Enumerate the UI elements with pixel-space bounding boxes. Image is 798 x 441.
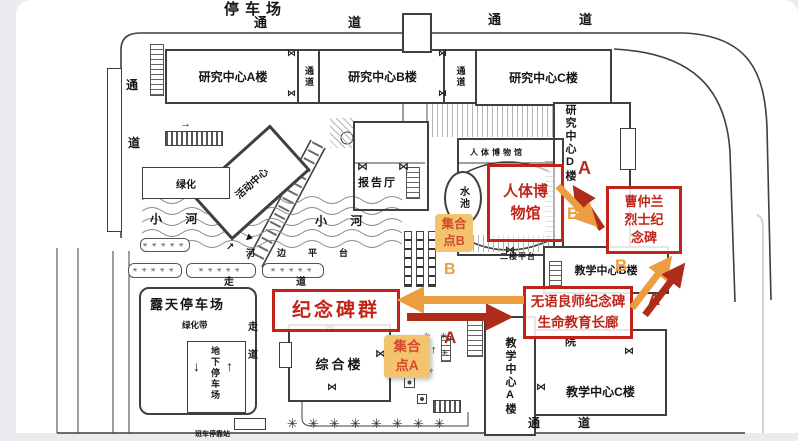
museum-building-label: 人体博物馆 bbox=[470, 147, 525, 158]
museum-callout-line2: 物馆 bbox=[490, 203, 561, 225]
cao-callout-line1: 曹仲兰 bbox=[609, 193, 679, 211]
door-icon-2: ⋈ bbox=[287, 88, 296, 99]
hedge-strip-3: ✳✳✳✳✳ bbox=[186, 263, 256, 278]
road-char-dao-bottom: 道 bbox=[578, 414, 590, 431]
small-sign-arrow: → bbox=[180, 118, 191, 130]
assembly-a-line1: 集合 bbox=[384, 338, 430, 356]
route-marker-b-1: B bbox=[567, 204, 579, 224]
plaza-hatch-4 bbox=[330, 118, 354, 148]
riverside-platform-label: 河边平台 bbox=[246, 246, 370, 259]
passage-column-2: 通道 bbox=[443, 49, 479, 104]
door-icon-12: ⋈ bbox=[505, 245, 515, 256]
lecture-hall-label: 报告厅 bbox=[358, 174, 397, 190]
tree-icon-7: ✳ bbox=[413, 416, 424, 432]
passage-column-1-label: 通道 bbox=[303, 66, 316, 88]
greenery-belt-label: 绿化带 bbox=[182, 319, 208, 331]
river-label-1: 小 河 bbox=[150, 210, 207, 227]
passage-column-2-label: 通道 bbox=[455, 66, 468, 88]
teaching-a-label: 教学中心A楼 bbox=[502, 337, 518, 416]
campus-map: 停车场 通 道 通 道 通 道 通 道 研究中心A楼 通道 研究中心B楼 通道 … bbox=[0, 0, 798, 441]
tree-icon-4: ✳ bbox=[350, 416, 361, 432]
road-char-tong-left: 通 bbox=[126, 76, 138, 93]
river-label-2: 小 河 bbox=[315, 212, 372, 229]
route-marker-b-3: B bbox=[615, 256, 627, 276]
door-icon-3: ⋈ bbox=[438, 48, 447, 59]
open-air-parking-label: 露天停车场 bbox=[150, 294, 225, 313]
slat-2 bbox=[416, 231, 424, 287]
building-research-center-a: 研究中心A楼 bbox=[165, 49, 301, 104]
hedge-strip-2: ✳✳✳✳✳ bbox=[128, 263, 182, 278]
bus-stop-shelter bbox=[234, 418, 266, 430]
underground-parking-label: 地下停车场 bbox=[209, 346, 222, 401]
road-char-tong-bottom: 通 bbox=[528, 414, 540, 431]
building-comprehensive: 综合楼 bbox=[288, 324, 391, 402]
walkway-char-3: 走 bbox=[248, 318, 258, 333]
tree-icon-2: ✳ bbox=[308, 416, 319, 432]
pool-label: 水池 bbox=[456, 186, 471, 210]
callout-monument-group: 纪念碑群 bbox=[272, 289, 400, 332]
building-teaching-c: 教学中心C楼 bbox=[534, 329, 667, 416]
tree-icon-6: ✳ bbox=[392, 416, 403, 432]
mentor-callout-line1: 无语良师纪念碑 bbox=[526, 292, 630, 313]
stairs-1 bbox=[467, 317, 483, 357]
up-arrow: ↑ bbox=[226, 358, 233, 374]
door-icon-1: ⋈ bbox=[287, 48, 296, 59]
road-char-dao-2: 道 bbox=[579, 9, 592, 28]
tree-icon-12: ✳ bbox=[441, 348, 449, 359]
tower-top bbox=[402, 13, 432, 53]
walkway-char-1: 走 bbox=[224, 273, 234, 288]
tree-icon-8: ✳ bbox=[434, 416, 445, 432]
slat-1 bbox=[404, 231, 412, 287]
road-char-dao-1: 道 bbox=[348, 12, 361, 31]
road-char-tong-2: 通 bbox=[488, 9, 501, 28]
door-icon-11: ⋈ bbox=[536, 382, 546, 393]
assembly-b-line2: 点B bbox=[435, 233, 473, 250]
assembly-b-line1: 集合 bbox=[435, 216, 473, 233]
door-icon-5: ⋈ bbox=[357, 160, 368, 173]
down-arrow: ↓ bbox=[193, 358, 200, 374]
planter-2 bbox=[404, 377, 415, 388]
door-icon-9: ⋈ bbox=[327, 382, 337, 393]
bus-stop-label: 班车停靠站 bbox=[195, 429, 230, 439]
tree-icon-1: ✳ bbox=[287, 416, 298, 432]
small-sign bbox=[165, 131, 223, 146]
walkway-arrow-icon: ↗ bbox=[226, 242, 234, 253]
cao-callout-line2: 烈士纪 bbox=[609, 211, 679, 229]
museum-callout-line1: 人体博 bbox=[490, 181, 561, 203]
planter-3 bbox=[417, 394, 427, 404]
hedge-strip-4: ✳✳✳✳✳ bbox=[262, 263, 324, 278]
mentor-callout-line2: 生命教育长廊 bbox=[526, 313, 630, 334]
stairs-up-arrow: ↑ bbox=[431, 344, 437, 356]
route-marker-b-2: B bbox=[444, 261, 456, 279]
assembly-point-a: 集合 点A bbox=[384, 335, 430, 378]
road-char-tong-1: 通 bbox=[254, 12, 267, 31]
route-marker-a-1: A bbox=[578, 158, 591, 179]
hedge-strip-1: ✳✳✳✳✳ bbox=[140, 238, 190, 252]
door-icon-10: ⋈ bbox=[624, 346, 634, 357]
door-icon-4: ⋈ bbox=[438, 88, 447, 99]
road-char-dao-left: 道 bbox=[128, 134, 140, 151]
door-icon-6: ⋈ bbox=[398, 160, 409, 173]
assembly-a-line2: 点A bbox=[384, 357, 430, 375]
building-research-d-annex bbox=[620, 128, 636, 170]
tree-icon-5: ✳ bbox=[371, 416, 382, 432]
stairs-2 bbox=[549, 261, 562, 287]
building-research-center-c: 研究中心C楼 bbox=[475, 49, 612, 106]
callout-cao-zhonglan-memorial: 曹仲兰 烈士纪 念碑 bbox=[606, 186, 682, 254]
route-marker-a-3: A bbox=[648, 290, 660, 310]
building-research-center-b: 研究中心B楼 bbox=[318, 49, 447, 104]
cao-callout-line3: 念碑 bbox=[609, 229, 679, 247]
callout-human-body-museum: 人体博 物馆 bbox=[487, 164, 564, 242]
greenery-area: 绿化 bbox=[142, 167, 230, 199]
comprehensive-annex bbox=[279, 342, 292, 368]
route-marker-a-2: A bbox=[444, 328, 456, 348]
building-research-d-label: 研究中心D楼 bbox=[562, 104, 578, 183]
callout-silent-mentor-memorial: 无语良师纪念碑 生命教育长廊 bbox=[523, 286, 633, 339]
assembly-point-b: 集合 点B bbox=[435, 214, 473, 252]
walkway-char-2: 道 bbox=[296, 273, 306, 288]
tree-icon-3: ✳ bbox=[329, 416, 340, 432]
hedge-column-topleft bbox=[150, 44, 164, 96]
walkway-char-4: 道 bbox=[248, 346, 258, 361]
planter-sign bbox=[433, 400, 461, 413]
wall-left bbox=[107, 68, 122, 232]
